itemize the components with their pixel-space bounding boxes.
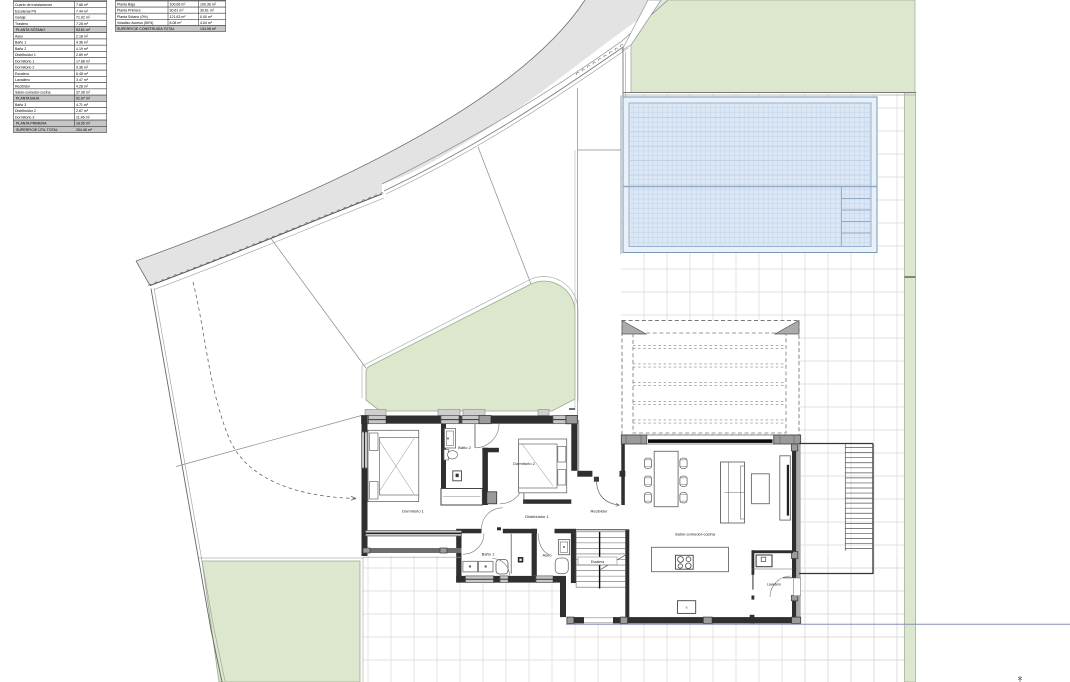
svg-text:Planta Primera: Planta Primera	[117, 9, 140, 13]
svg-text:Baño 1: Baño 1	[482, 552, 495, 557]
svg-text:PLANTA SÓTANO: PLANTA SÓTANO	[16, 27, 45, 32]
svg-text:Lavadero: Lavadero	[767, 583, 781, 587]
svg-text:Dormitorio 1: Dormitorio 1	[402, 509, 425, 514]
svg-text:Voladizo Acceso (50%): Voladizo Acceso (50%)	[117, 21, 153, 25]
svg-text:SUPERFICIE CONSTRUIDA TOTAL: SUPERFICIE CONSTRUIDA TOTAL	[117, 27, 175, 31]
svg-text:PLANTA PRIMERA: PLANTA PRIMERA	[16, 122, 47, 126]
svg-text:Garaje: Garaje	[15, 16, 26, 20]
svg-text:8.08 m²: 8.08 m²	[170, 21, 183, 25]
svg-text:17.88 m²: 17.88 m²	[76, 59, 91, 63]
svg-text:6.48 m²: 6.48 m²	[76, 72, 89, 76]
svg-text:37.98 m²: 37.98 m²	[76, 91, 91, 95]
svg-text:Trastero: Trastero	[15, 22, 28, 26]
svg-text:Dormitorio 2: Dormitorio 2	[513, 461, 536, 466]
svg-text:SUPERFICIE ÚTIL TOTAL: SUPERFICIE ÚTIL TOTAL	[16, 127, 58, 132]
svg-text:Dormitorio 2: Dormitorio 2	[15, 66, 34, 70]
svg-text:Dormitorio 1: Dormitorio 1	[15, 59, 34, 63]
svg-text:30.61 m²: 30.61 m²	[170, 9, 185, 13]
svg-text:Dormitorio 3: Dormitorio 3	[15, 115, 34, 119]
svg-text:Baño 2: Baño 2	[458, 445, 471, 450]
svg-text:93.61 m²: 93.61 m²	[76, 28, 91, 32]
svg-text:Cuarto de instalaciones: Cuarto de instalaciones	[15, 3, 52, 7]
svg-text:2.89 m²: 2.89 m²	[76, 53, 89, 57]
svg-text:Baño 1: Baño 1	[15, 41, 26, 45]
svg-text:0.00 m²: 0.00 m²	[200, 15, 213, 19]
svg-text:Distribuidor 1: Distribuidor 1	[15, 53, 36, 57]
svg-text:7.28 m²: 7.28 m²	[76, 22, 89, 26]
svg-text:Baño 2: Baño 2	[15, 47, 26, 51]
svg-text:2.67 m²: 2.67 m²	[76, 109, 89, 113]
svg-text:Planta Sótano (0%): Planta Sótano (0%)	[117, 15, 148, 19]
svg-text:30.61 m²: 30.61 m²	[200, 9, 215, 13]
svg-text:7.88 m²: 7.88 m²	[76, 3, 89, 7]
svg-text:Recibidor: Recibidor	[15, 84, 31, 88]
svg-text:Escalera: Escalera	[591, 560, 604, 564]
svg-text:Distribuidor 2: Distribuidor 2	[15, 109, 36, 113]
svg-text:Escalera: Escalera	[15, 72, 29, 76]
svg-text:204.46 m²: 204.46 m²	[76, 128, 93, 132]
svg-text:18.95 m²: 18.95 m²	[76, 122, 91, 126]
svg-text:Escaleras PS: Escaleras PS	[15, 9, 37, 13]
svg-text:134.98 m²: 134.98 m²	[200, 27, 217, 31]
svg-text:Aseo: Aseo	[15, 34, 23, 38]
svg-text:4.04 m²: 4.04 m²	[200, 21, 213, 25]
svg-text:Aseo: Aseo	[542, 553, 552, 558]
svg-text:Salón-comedor-cocina: Salón-comedor-cocina	[675, 532, 716, 537]
svg-text:91.97 m²: 91.97 m²	[76, 97, 91, 101]
svg-text:4.71 m²: 4.71 m²	[76, 103, 89, 107]
svg-text:Recibidor: Recibidor	[591, 509, 609, 514]
svg-text:100.06 m²: 100.06 m²	[170, 3, 187, 7]
svg-text:9.36 m²: 9.36 m²	[76, 66, 89, 70]
svg-text:4.19 m²: 4.19 m²	[76, 47, 89, 51]
svg-text:a: a	[686, 606, 688, 610]
svg-text:Planta Baja: Planta Baja	[117, 3, 135, 7]
svg-text:2.18 m²: 2.18 m²	[76, 34, 89, 38]
svg-text:3.47 m²: 3.47 m²	[76, 78, 89, 82]
svg-text:4.36 m²: 4.36 m²	[76, 41, 89, 45]
svg-text:71.02 m²: 71.02 m²	[76, 16, 91, 20]
svg-text:100.36 m²: 100.36 m²	[200, 3, 217, 7]
svg-text:Distribuidor 1: Distribuidor 1	[525, 514, 549, 519]
svg-text:Lavadero: Lavadero	[15, 78, 30, 82]
svg-text:Salón-comedor-cocina: Salón-comedor-cocina	[15, 91, 51, 95]
svg-text:11.46 m²: 11.46 m²	[76, 115, 91, 119]
svg-text:121.63 m²: 121.63 m²	[170, 15, 187, 19]
svg-text:4.28 m²: 4.28 m²	[76, 84, 89, 88]
svg-text:PLANTA BAJA: PLANTA BAJA	[16, 97, 40, 101]
svg-text:Baño 3: Baño 3	[15, 103, 26, 107]
svg-text:7.44 m²: 7.44 m²	[76, 9, 89, 13]
